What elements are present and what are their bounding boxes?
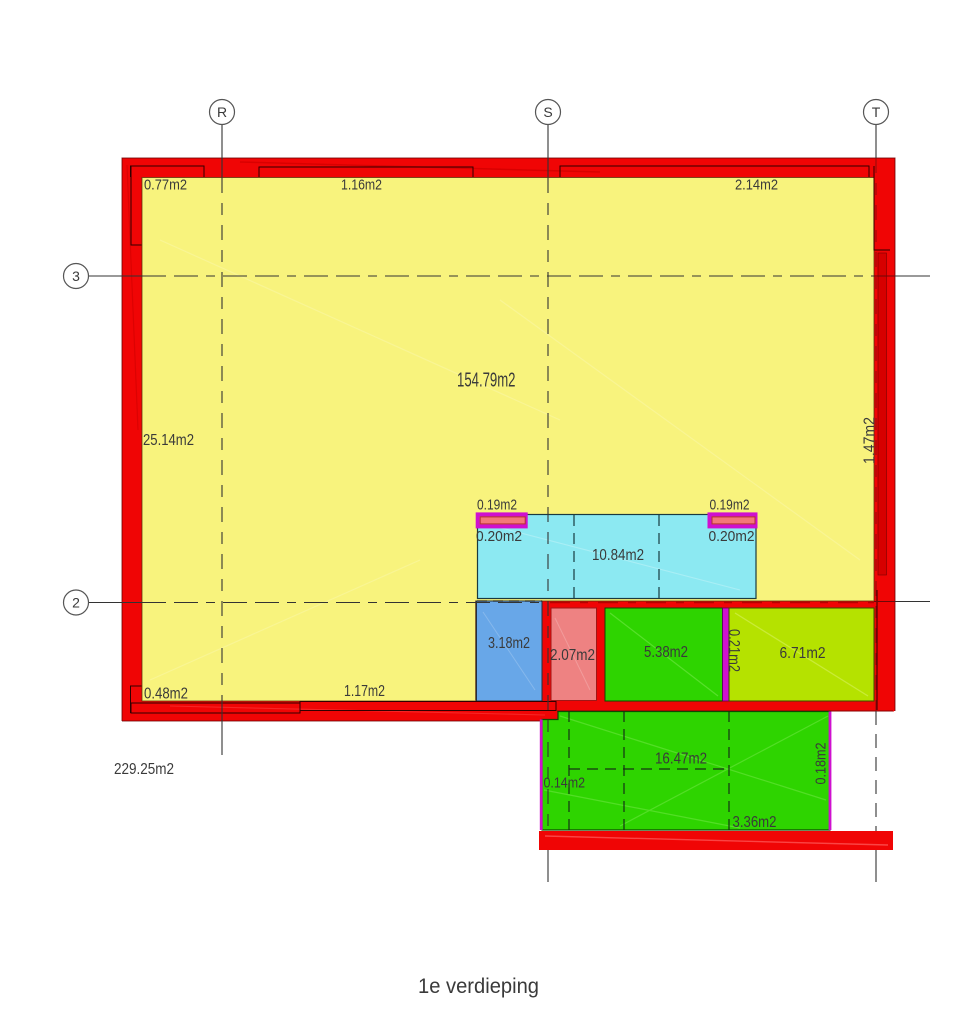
svg-text:1e verdieping: 1e verdieping — [418, 975, 539, 998]
svg-text:5.38m2: 5.38m2 — [644, 644, 688, 661]
svg-text:2.07m2: 2.07m2 — [550, 647, 595, 664]
svg-text:1.16m2: 1.16m2 — [341, 177, 382, 194]
svg-text:25.14m2: 25.14m2 — [143, 432, 194, 449]
svg-text:229.25m2: 229.25m2 — [114, 761, 174, 778]
svg-text:2.14m2: 2.14m2 — [735, 177, 778, 194]
svg-text:0.19m2: 0.19m2 — [477, 497, 517, 514]
svg-text:0.19m2: 0.19m2 — [710, 497, 750, 514]
svg-text:2: 2 — [72, 595, 80, 611]
svg-text:6.71m2: 6.71m2 — [780, 645, 826, 662]
svg-text:0.48m2: 0.48m2 — [144, 686, 188, 703]
svg-text:0.20m2: 0.20m2 — [476, 528, 522, 545]
svg-text:3.36m2: 3.36m2 — [733, 814, 777, 831]
svg-text:0.18m2: 0.18m2 — [813, 743, 830, 785]
svg-text:0.77m2: 0.77m2 — [144, 177, 187, 194]
svg-text:3.18m2: 3.18m2 — [488, 635, 530, 652]
svg-text:1.17m2: 1.17m2 — [344, 683, 385, 700]
svg-text:R: R — [217, 104, 227, 120]
svg-text:0.21m2: 0.21m2 — [725, 629, 742, 672]
svg-text:10.84m2: 10.84m2 — [592, 547, 644, 564]
svg-text:3: 3 — [72, 268, 80, 284]
svg-text:T: T — [872, 104, 881, 120]
svg-text:1.47m2: 1.47m2 — [862, 417, 879, 464]
svg-text:S: S — [543, 104, 552, 120]
svg-text:0.14m2: 0.14m2 — [544, 775, 586, 792]
svg-text:154.79m2: 154.79m2 — [457, 370, 516, 392]
svg-text:0.20m2: 0.20m2 — [709, 528, 755, 545]
svg-text:16.47m2: 16.47m2 — [655, 751, 707, 768]
